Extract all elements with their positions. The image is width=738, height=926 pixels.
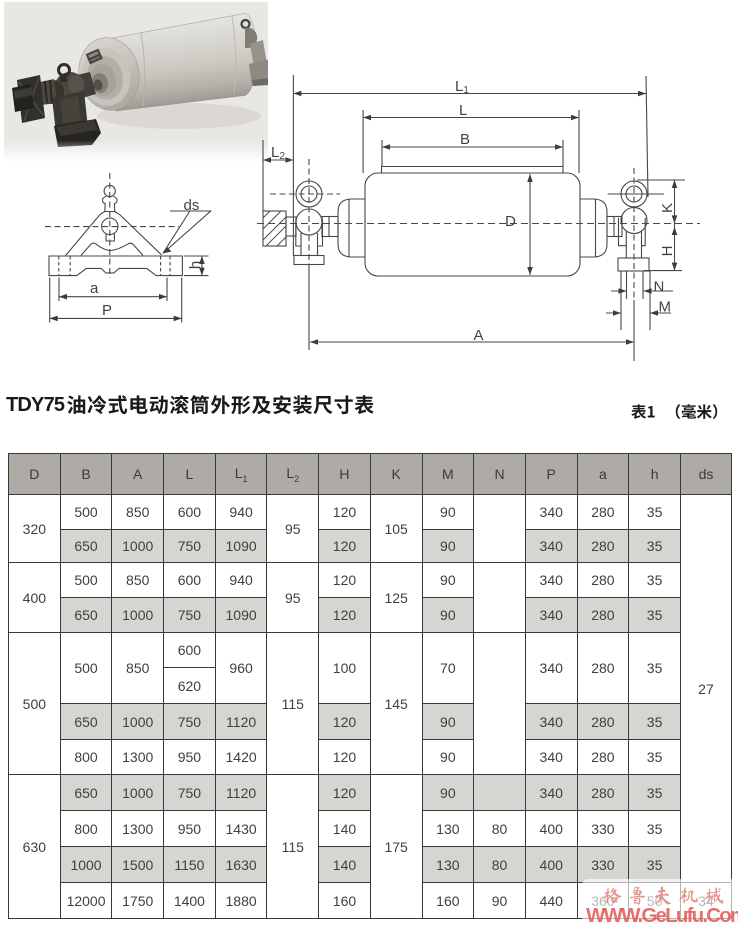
svg-text:L: L bbox=[459, 102, 467, 119]
svg-text:TDY75: TDY75 bbox=[6, 394, 65, 416]
svg-text:H: H bbox=[659, 246, 676, 257]
svg-text:L2: L2 bbox=[271, 144, 285, 162]
svg-text:D: D bbox=[505, 213, 516, 230]
svg-text:N: N bbox=[654, 279, 665, 296]
svg-text:a: a bbox=[90, 280, 99, 297]
svg-text:P: P bbox=[102, 302, 112, 319]
svg-text:K: K bbox=[659, 203, 676, 213]
svg-text:B: B bbox=[460, 131, 470, 148]
